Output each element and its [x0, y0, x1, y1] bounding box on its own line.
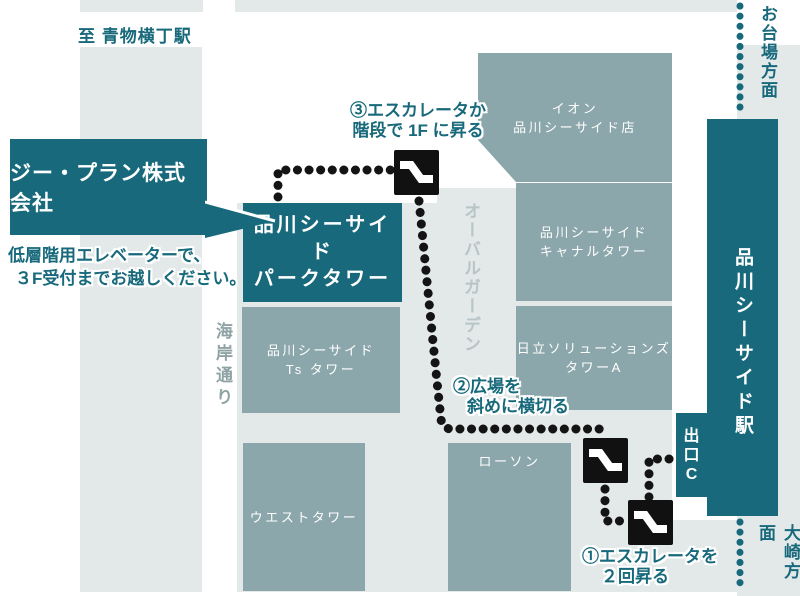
callout-pointer	[205, 198, 279, 240]
company-name: ジー・プラン株式会社	[10, 157, 207, 217]
route-step-1: ①エスカレータを ２回昇る	[582, 547, 718, 587]
station-exit-c: 出口C	[676, 413, 707, 497]
building-lawson: ローソン	[448, 443, 571, 591]
building-lawson-label: ローソン	[478, 452, 540, 471]
city-block-top	[235, 0, 737, 12]
access-map: イオン 品川シーサイド店 品川シーサイド キャナルタワー 日立ソリューションズ …	[0, 0, 800, 596]
elevator-note-line-1: 低層階用エレベーターで、	[8, 244, 246, 267]
route-step-3-line-1: ③エスカレータか	[338, 101, 498, 121]
route-step-2-line-2: 斜めに横切る	[467, 397, 569, 417]
route-step-3: ③エスカレータか 階段で 1F に昇る	[338, 101, 498, 141]
route-segment-to-park-tower	[278, 170, 391, 197]
route-step-1-line-2: ２回昇る	[601, 567, 718, 587]
exit-c-label: 出口C	[683, 427, 701, 484]
building-aeon-label-1: イオン	[552, 99, 599, 118]
direction-odaiba: お台場方面	[755, 5, 780, 100]
direction-osaki: 大崎方面	[753, 524, 800, 596]
escalator-icon	[583, 438, 628, 483]
building-hitachi-label-1: 日立ソリューションズ	[517, 339, 671, 358]
building-aeon: イオン 品川シーサイド店	[478, 53, 672, 182]
route-step-2-line-1: ②広場を	[453, 377, 569, 397]
building-west-tower: ウエストタワー	[243, 443, 365, 591]
building-aeon-label-2: 品川シーサイド店	[513, 118, 637, 137]
area-oval-garden: オーバルガーデン	[458, 202, 483, 354]
building-park-label-2: パークタワー	[254, 266, 391, 293]
escalator-icon	[394, 150, 439, 195]
building-ts-tower: 品川シーサイド Ts タワー	[242, 307, 400, 413]
building-ts-label-2: Ts タワー	[286, 360, 357, 379]
building-canal-label-1: 品川シーサイド	[540, 223, 648, 242]
company-callout: ジー・プラン株式会社	[10, 139, 207, 235]
city-block-top-left	[80, 0, 203, 12]
route-step-1-line-1: ①エスカレータを	[582, 547, 718, 567]
building-hitachi-label-2: タワーA	[565, 358, 623, 377]
escalator-icon	[628, 500, 673, 545]
elevator-note-line-2: ３F受付までお越しください。	[15, 267, 246, 290]
route-step-2: ②広場を 斜めに横切る	[453, 377, 569, 417]
building-canal-tower: 品川シーサイド キャナルタワー	[516, 183, 672, 301]
direction-aomono: 至 青物横丁駅	[78, 22, 192, 47]
route-step-3-line-2: 階段で 1F に昇る	[338, 121, 498, 141]
elevator-note: 低層階用エレベーターで、 ３F受付までお越しください。	[8, 244, 246, 290]
building-ts-label-1: 品川シーサイド	[267, 341, 375, 360]
station-shinagawa-seaside: 品川シーサイド駅	[707, 119, 778, 516]
street-kaigan-dori: 海岸通り	[210, 322, 235, 410]
building-canal-label-2: キャナルタワー	[540, 242, 649, 261]
building-west-label: ウエストタワー	[250, 508, 359, 527]
city-block-west	[80, 47, 202, 592]
station-name-label: 品川シーサイド駅	[729, 247, 756, 439]
